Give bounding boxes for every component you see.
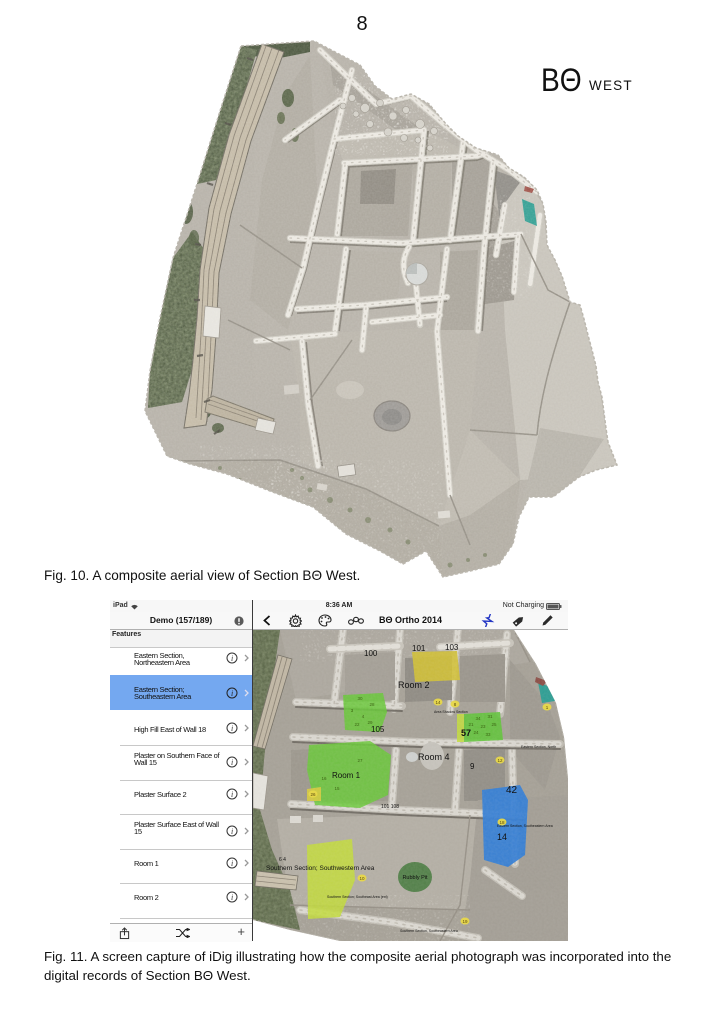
svg-text:18: 18 (499, 820, 505, 825)
svg-text:42: 42 (506, 785, 518, 796)
svg-text:Room 4: Room 4 (418, 752, 450, 762)
svg-text:12: 12 (497, 758, 503, 763)
svg-text:105: 105 (371, 725, 385, 734)
svg-text:34: 34 (475, 716, 481, 721)
svg-text:31: 31 (487, 714, 493, 719)
svg-text:33: 33 (485, 732, 491, 737)
svg-text:Eastern Section, Southeastern: Eastern Section, Southeastern Area (497, 824, 553, 828)
svg-text:i: i (231, 790, 233, 799)
svg-text:6 4: 6 4 (279, 857, 286, 863)
svg-text:23: 23 (480, 724, 486, 729)
svg-text:10: 10 (359, 876, 365, 881)
svg-text:Southern Section; Southwestern: Southern Section; Southwestern Area (266, 865, 375, 872)
svg-text:i: i (231, 827, 233, 836)
svg-text:Eastern Section, North: Eastern Section, North (521, 745, 556, 749)
svg-text:101 108: 101 108 (381, 804, 399, 810)
svg-text:24: 24 (473, 730, 479, 735)
svg-text:Area Shadow Section: Area Shadow Section (434, 710, 468, 714)
svg-text:i: i (231, 758, 233, 767)
svg-text:27: 27 (357, 758, 363, 763)
svg-text:i: i (231, 689, 233, 698)
svg-text:28: 28 (369, 702, 375, 707)
svg-text:Southern Section, Southeastern: Southern Section, Southeastern Area (400, 929, 458, 933)
svg-text:9: 9 (470, 762, 475, 771)
svg-text:22: 22 (354, 722, 360, 727)
svg-text:29: 29 (367, 720, 373, 725)
svg-text:i: i (231, 654, 233, 663)
svg-text:103: 103 (445, 643, 459, 652)
svg-text:i: i (231, 859, 233, 868)
svg-text:Room 2: Room 2 (398, 680, 430, 690)
svg-text:i: i (231, 893, 233, 902)
svg-text:Room 1: Room 1 (332, 771, 361, 780)
svg-text:101: 101 (412, 644, 426, 653)
svg-text:21: 21 (468, 722, 474, 727)
svg-text:57: 57 (461, 728, 471, 738)
svg-text:19: 19 (462, 919, 468, 924)
svg-text:i: i (231, 724, 233, 733)
svg-text:14: 14 (497, 832, 507, 842)
svg-text:25: 25 (491, 722, 497, 727)
svg-text:14: 14 (435, 700, 441, 705)
svg-text:30: 30 (357, 696, 363, 701)
svg-text:100: 100 (364, 649, 378, 658)
svg-text:15: 15 (334, 786, 340, 791)
svg-text:26: 26 (310, 792, 316, 797)
svg-text:16: 16 (321, 776, 327, 781)
svg-text:Southern Section; Southeast Ar: Southern Section; Southeast Area (ext) (327, 895, 388, 899)
svg-text:Rubbly Pit: Rubbly Pit (402, 875, 428, 881)
